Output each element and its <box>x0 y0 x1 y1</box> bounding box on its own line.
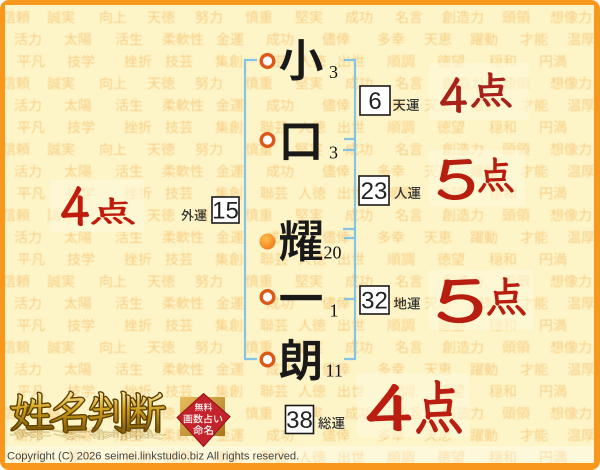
svg-text:23: 23 <box>361 178 388 205</box>
svg-text:11: 11 <box>326 361 343 381</box>
svg-text:20: 20 <box>324 243 342 263</box>
svg-text:38: 38 <box>286 407 313 434</box>
svg-text:15: 15 <box>212 198 239 225</box>
svg-text:Copyright (C) 2026 seimei.link: Copyright (C) 2026 seimei.linkstudio.biz… <box>7 451 299 463</box>
svg-text:1: 1 <box>330 301 339 321</box>
svg-text:3: 3 <box>329 143 338 163</box>
svg-text:3: 3 <box>329 62 338 82</box>
svg-text:6: 6 <box>368 88 381 115</box>
svg-text:32: 32 <box>361 288 388 315</box>
